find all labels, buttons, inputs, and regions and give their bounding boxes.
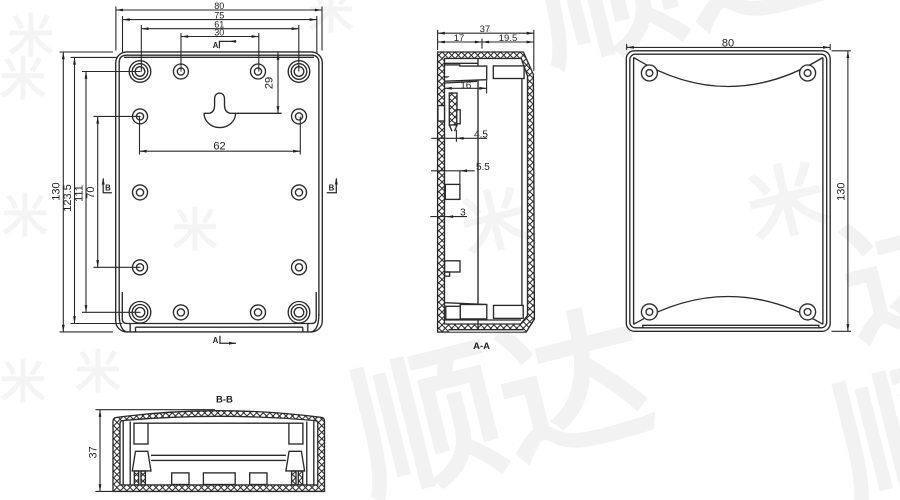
svg-text:5.5: 5.5	[476, 162, 490, 173]
svg-text:30: 30	[214, 28, 224, 38]
svg-text:米: 米	[0, 53, 46, 105]
svg-text:4.5: 4.5	[474, 130, 488, 141]
svg-text:80: 80	[722, 37, 734, 49]
svg-text:米: 米	[308, 0, 354, 38]
svg-text:3: 3	[460, 207, 466, 218]
svg-text:130: 130	[835, 183, 847, 201]
svg-text:16: 16	[460, 81, 472, 92]
svg-text:B: B	[329, 183, 335, 192]
svg-text:123.5: 123.5	[62, 184, 74, 212]
svg-text:A-A: A-A	[473, 341, 490, 352]
svg-text:37: 37	[480, 24, 491, 35]
svg-text:B: B	[105, 183, 111, 192]
svg-text:17: 17	[454, 33, 465, 44]
svg-text:19.5: 19.5	[499, 33, 518, 44]
svg-text:B-B: B-B	[216, 395, 233, 406]
svg-text:米: 米	[2, 190, 48, 242]
svg-text:70: 70	[85, 186, 97, 198]
svg-text:80: 80	[214, 1, 224, 11]
svg-text:A: A	[213, 336, 219, 345]
svg-text:米: 米	[0, 356, 46, 408]
svg-text:111: 111	[74, 185, 86, 202]
svg-text:米: 米	[172, 204, 218, 256]
svg-text:米: 米	[75, 346, 121, 398]
svg-text:29: 29	[264, 77, 276, 89]
svg-text:130: 130	[51, 182, 63, 200]
svg-text:37: 37	[88, 446, 100, 458]
svg-text:62: 62	[213, 141, 225, 153]
svg-text:A: A	[213, 41, 219, 50]
